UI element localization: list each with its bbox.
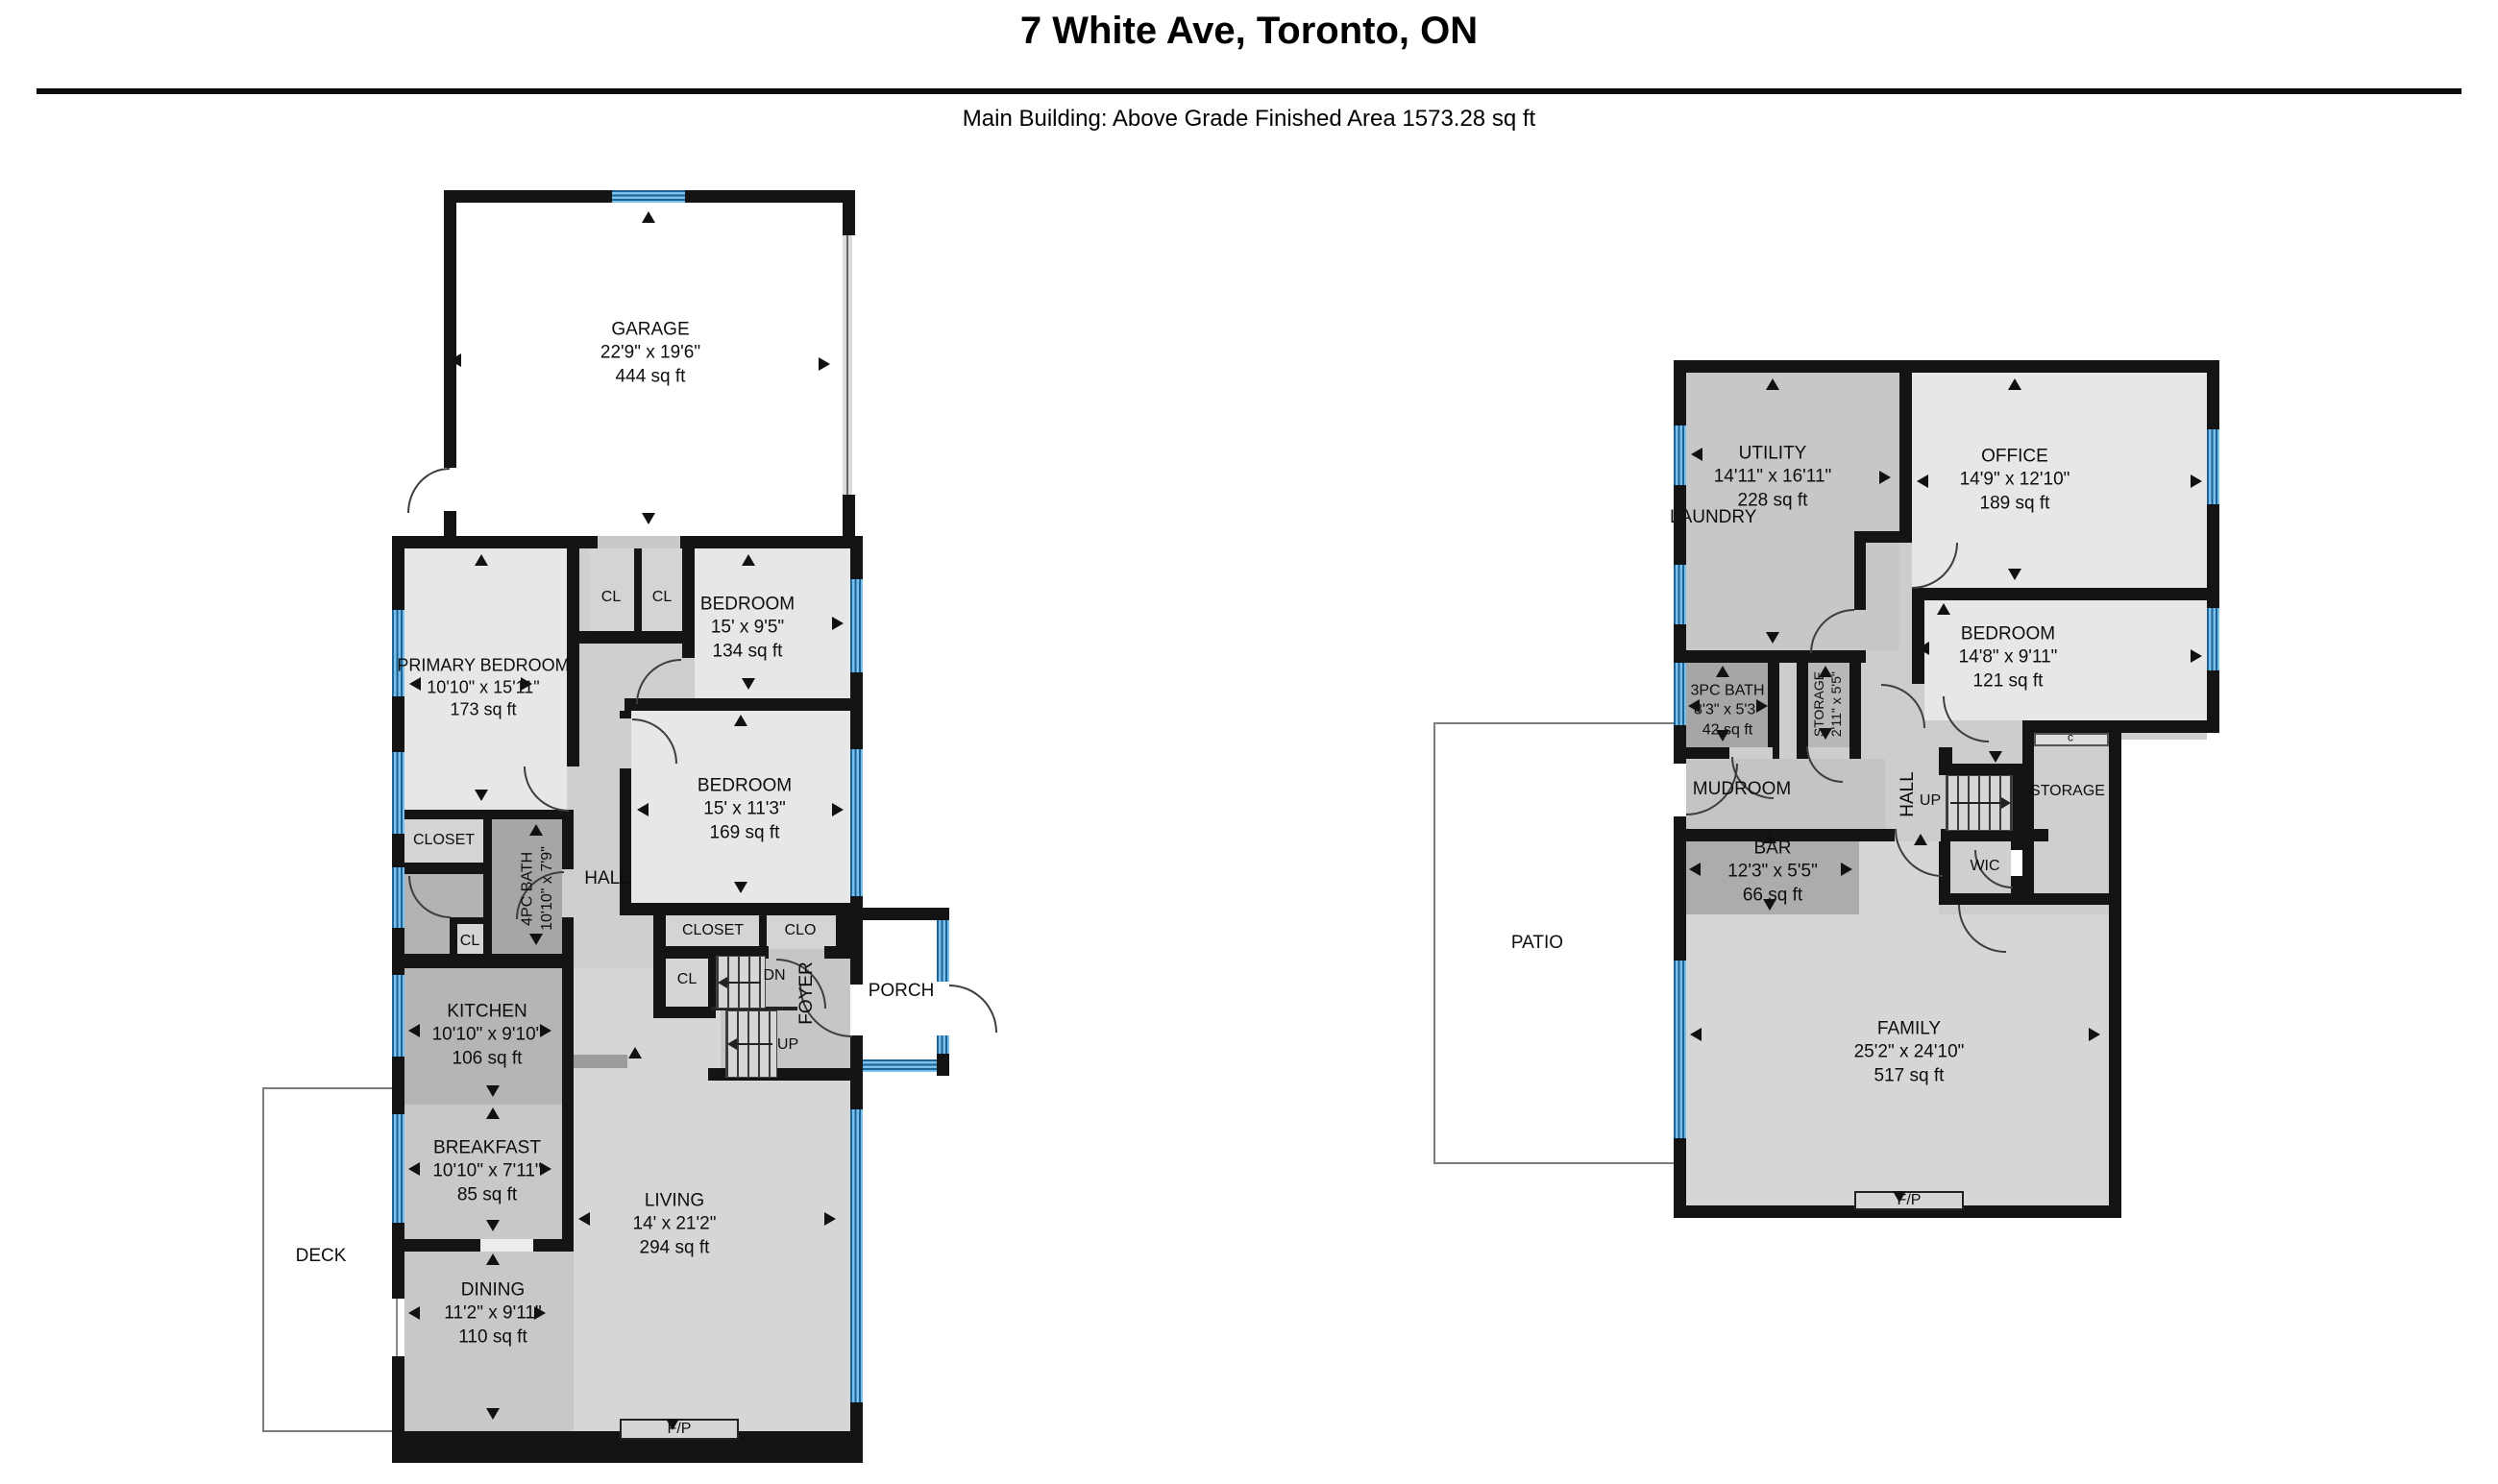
room-label-cl2: CL	[652, 588, 672, 607]
room-area: 169 sq ft	[698, 821, 792, 844]
room-label-mudroom: MUDROOM	[1693, 778, 1791, 801]
dimension-arrow	[521, 677, 532, 691]
dimension-arrow	[1937, 603, 1950, 615]
stairs-dn-text: DN	[763, 966, 785, 985]
dimension-arrow	[486, 1408, 500, 1420]
room-area: 121 sq ft	[1959, 669, 2058, 693]
dimension-arrow	[832, 803, 844, 816]
dimension-arrow	[1691, 448, 1702, 461]
room-label-bedroom1: BEDROOM15' x 9'5"134 sq ft	[700, 594, 795, 664]
dimension-arrow	[1688, 699, 1700, 713]
dimension-arrow	[486, 1107, 500, 1119]
stair-arrow	[2001, 797, 2011, 809]
room-name: BEDROOM	[1959, 623, 2058, 646]
dimension-arrow	[1766, 632, 1779, 644]
wall	[562, 917, 574, 954]
dimension-arrow	[540, 1024, 551, 1037]
dimension-arrow	[1819, 666, 1832, 677]
stair-arrow-line	[1950, 802, 2008, 804]
room-dims: 14' x 21'2"	[633, 1213, 717, 1236]
wall	[2022, 727, 2034, 905]
window	[1674, 961, 1686, 1138]
dimension-arrow	[734, 715, 747, 726]
wall	[1849, 663, 1861, 759]
dimension-arrow	[1763, 832, 1776, 843]
wall	[1674, 747, 1729, 759]
dimension-arrow	[1989, 751, 2002, 763]
dimension-arrow	[1766, 378, 1779, 390]
door-opening	[937, 982, 949, 1035]
room-name: HALL	[1897, 771, 1920, 817]
window	[850, 579, 863, 672]
room-label-breakfast: BREAKFAST10'10" x 7'11"85 sq ft	[432, 1137, 541, 1207]
room-name: BEDROOM	[698, 775, 792, 798]
window	[1674, 663, 1686, 725]
wall	[653, 1007, 716, 1018]
room-area: 173 sq ft	[397, 699, 569, 721]
dimension-arrow	[408, 1024, 420, 1037]
window	[392, 752, 404, 834]
room-name: CL	[601, 588, 621, 607]
wall	[2109, 733, 2121, 1218]
dimension-arrow	[628, 1047, 642, 1058]
window	[612, 190, 685, 203]
room-label-garage: GARAGE22'9" x 19'6"444 sq ft	[600, 319, 700, 389]
dimension-arrow	[1716, 666, 1729, 677]
wall	[392, 863, 483, 874]
dimension-arrow	[642, 211, 655, 223]
room-name: CL	[652, 588, 672, 607]
wall	[483, 810, 492, 959]
stairs-up	[1946, 775, 2013, 831]
wall	[392, 1239, 480, 1252]
wall	[620, 711, 631, 718]
room-label-storage: STORAGE	[2030, 782, 2105, 801]
dimension-arrow	[742, 678, 755, 690]
room-name: FAMILY	[1854, 1018, 1965, 1041]
room-name: 4PC BATH	[519, 846, 538, 931]
wall	[2022, 720, 2219, 733]
window	[2207, 608, 2219, 670]
room-name: CL	[460, 932, 479, 951]
room-dims: 14'11" x 16'11"	[1714, 466, 1832, 489]
dimension-arrow	[2089, 1028, 2100, 1041]
room-label-cl3: CL	[460, 932, 479, 951]
room-label-family: FAMILY25'2" x 24'10"517 sq ft	[1854, 1018, 1965, 1088]
dimension-arrow	[824, 1212, 836, 1226]
room-label-wic: WIC	[1970, 857, 1999, 876]
wall	[759, 915, 767, 949]
room-dims: 22'9" x 19'6"	[600, 342, 700, 365]
room-label-bath4pc: 4PC BATH10'10" x 7'9"	[519, 846, 558, 931]
wall	[836, 903, 850, 959]
room-area: 106 sq ft	[432, 1047, 543, 1070]
dimension-arrow	[486, 1220, 500, 1231]
dimension-arrow	[486, 1085, 500, 1097]
stairs-label-up: UP	[777, 1035, 798, 1055]
room-label-clo: CLO	[785, 921, 817, 940]
room-label-foyer: FOYER	[796, 961, 819, 1024]
dimension-arrow	[2008, 569, 2021, 580]
room-name: STORAGE	[1811, 671, 1828, 737]
wall	[562, 810, 574, 869]
dimension-arrow	[1918, 642, 1929, 655]
stairs-down	[716, 956, 766, 1009]
room-name: PORCH	[869, 980, 935, 1003]
dimension-arrow	[642, 513, 655, 524]
room-label-utility: UTILITY14'11" x 16'11"228 sq ft	[1714, 443, 1832, 513]
wall	[579, 631, 695, 644]
wall	[1674, 360, 2219, 373]
wall	[1854, 531, 1912, 543]
room-area: 189 sq ft	[1960, 492, 2070, 515]
room-name: BEDROOM	[700, 594, 795, 617]
dimension-arrow	[475, 790, 488, 801]
stairs-up-text: UP	[777, 1035, 798, 1055]
room-name: GARAGE	[600, 319, 700, 342]
room-area: 134 sq ft	[700, 640, 795, 663]
room-name: CL	[677, 970, 697, 989]
room-label-cl1: CL	[601, 588, 621, 607]
wall	[708, 959, 716, 1007]
dimension-arrow	[1879, 471, 1891, 484]
room-name: PATIO	[1511, 932, 1563, 955]
room-name: KITCHEN	[432, 1001, 543, 1024]
window	[850, 1109, 863, 1402]
dimension-arrow	[1893, 1191, 1906, 1203]
room-label-living: LIVING14' x 21'2"294 sq ft	[633, 1190, 717, 1260]
room-dims: 10'10" x 15'11"	[397, 676, 569, 698]
dimension-arrow	[540, 1162, 551, 1176]
wall	[533, 1239, 574, 1252]
room-dims: 10'10" x 9'10"	[432, 1024, 543, 1047]
dimension-arrow	[666, 1419, 679, 1430]
stairs-up-text: UP	[1920, 791, 1941, 811]
room-area: 444 sq ft	[600, 365, 700, 388]
door-opening	[1674, 764, 1686, 816]
dimension-arrow	[1689, 863, 1701, 876]
room-label-patio: PATIO	[1511, 932, 1563, 955]
room-dims: 15' x 11'3"	[698, 798, 792, 821]
window	[850, 749, 863, 896]
page-title: 7 White Ave, Toronto, ON	[0, 10, 2498, 53]
door-swing	[407, 468, 450, 513]
room-label-cl4: CL	[677, 970, 697, 989]
room-name: WIC	[1970, 857, 1999, 876]
room-label-bedroom3: BEDROOM14'8" x 9'11"121 sq ft	[1959, 623, 2058, 693]
room-area: 228 sq ft	[1714, 489, 1832, 512]
window	[392, 867, 404, 928]
room-name: LIVING	[633, 1190, 717, 1213]
sliding-door	[392, 1299, 404, 1356]
room-label-bedroom2: BEDROOM15' x 11'3"169 sq ft	[698, 775, 792, 845]
room-label-kitchen: KITCHEN10'10" x 9'10"106 sq ft	[432, 1001, 543, 1071]
wall	[843, 495, 855, 536]
window	[937, 920, 949, 982]
wall	[850, 1057, 863, 1076]
wall	[1899, 373, 1912, 543]
room-name: MUDROOM	[1693, 778, 1791, 801]
dimension-arrow	[734, 882, 747, 893]
dimension-arrow	[1819, 728, 1832, 740]
room-name: OFFICE	[1960, 446, 2070, 469]
room-area: 110 sq ft	[444, 1326, 541, 1349]
room-dims: 8'3" x 5'3"	[1690, 701, 1764, 720]
room-label-closet: CLOSET	[413, 831, 475, 850]
dimension-arrow	[742, 554, 755, 566]
dimension-arrow	[529, 934, 543, 945]
window	[392, 975, 404, 1057]
dimension-arrow	[534, 1306, 546, 1320]
dimension-arrow	[832, 617, 844, 630]
room-label-storage-small: STORAGE2'11" x 5'5"	[1811, 671, 1846, 737]
room-name: PRIMARY BEDROOM	[397, 654, 569, 676]
wall	[1797, 663, 1808, 759]
room-dims: 10'10" x 7'11"	[432, 1160, 541, 1183]
dimension-arrow	[819, 357, 830, 371]
room-area: 517 sq ft	[1854, 1064, 1965, 1087]
wall	[843, 203, 855, 235]
door-opening	[480, 1239, 533, 1252]
room-name: DINING	[444, 1279, 541, 1302]
room-dims: 11'2" x 9'11"	[444, 1302, 541, 1326]
room-dims: 14'9" x 12'10"	[1960, 469, 2070, 492]
room-name: DECK	[296, 1245, 347, 1268]
room-label-hall2: HALL	[1897, 771, 1920, 817]
dimension-arrow	[1917, 474, 1928, 488]
window	[2207, 429, 2219, 504]
sliding-door-line	[396, 1299, 398, 1356]
room-area: 294 sq ft	[633, 1236, 717, 1259]
dimension-arrow	[578, 1212, 590, 1226]
window	[937, 1035, 949, 1054]
floorplan-page: 7 White Ave, Toronto, ON Main Building: …	[0, 0, 2498, 1484]
room-dims: 2'11" x 5'5"	[1828, 671, 1846, 737]
wall	[562, 954, 574, 1239]
room-fill-storage	[2034, 744, 2109, 893]
dimension-arrow	[408, 1306, 420, 1320]
room-label-hall: HALL	[584, 867, 630, 890]
room-name: CLOSET	[413, 831, 475, 850]
wall	[1939, 893, 2109, 905]
garage-door-line	[846, 235, 848, 495]
room-dims: 15' x 9'5"	[700, 617, 795, 640]
wall	[392, 954, 574, 968]
wall	[2207, 373, 2219, 733]
dimension-arrow	[2191, 649, 2202, 663]
room-name: CLOSET	[682, 921, 744, 940]
room-label-dining: DINING11'2" x 9'11"110 sq ft	[444, 1279, 541, 1350]
wall	[620, 903, 850, 915]
dimension-arrow	[1914, 834, 1927, 845]
dimension-arrow	[2008, 378, 2021, 390]
room-name: STORAGE	[2030, 782, 2105, 801]
room-label-primary-bedroom: PRIMARY BEDROOM10'10" x 15'11"173 sq ft	[397, 654, 569, 720]
room-dims: 14'8" x 9'11"	[1959, 646, 2058, 669]
window	[392, 1114, 404, 1223]
wall	[937, 1057, 949, 1076]
wall	[450, 917, 483, 924]
dimension-arrow	[1690, 1028, 1702, 1041]
room-label-deck: DECK	[296, 1245, 347, 1268]
room-label-closet-c: c	[2068, 730, 2073, 744]
fireplace: F/P	[620, 1419, 739, 1440]
page-subtitle: Main Building: Above Grade Finished Area…	[0, 106, 2498, 133]
room-dims: 12'3" x 5'5"	[1727, 861, 1818, 884]
room-name: 3PC BATH	[1690, 681, 1764, 700]
wall	[1773, 747, 1779, 759]
room-label-porch: PORCH	[869, 980, 935, 1003]
dimension-arrow	[1716, 730, 1729, 742]
fireplace: F/P	[1854, 1191, 1964, 1210]
kitchen-counter	[574, 1055, 627, 1068]
dimension-arrow	[529, 824, 543, 836]
stairs-label-up2: UP	[1920, 791, 1941, 811]
room-name: BREAKFAST	[432, 1137, 541, 1160]
room-label-office: OFFICE14'9" x 12'10"189 sq ft	[1960, 446, 2070, 516]
wall	[1939, 747, 1952, 764]
stair-arrow	[718, 977, 727, 988]
window	[1674, 426, 1686, 485]
dimension-arrow	[2191, 474, 2202, 488]
stairs-up	[725, 1010, 777, 1078]
dimension-arrow	[1756, 699, 1768, 713]
window	[1674, 565, 1686, 624]
door-opening	[598, 536, 680, 548]
room-name: FOYER	[796, 961, 819, 1024]
room-name: c	[2068, 730, 2073, 744]
window	[863, 1059, 937, 1072]
room-area: 85 sq ft	[432, 1183, 541, 1206]
room-name: HALL	[584, 867, 630, 890]
door-swing	[949, 985, 997, 1033]
wall	[653, 915, 666, 1018]
dimension-arrow	[475, 554, 488, 566]
dimension-arrow	[450, 353, 461, 367]
stairs-label-dn: DN	[763, 966, 785, 985]
wall	[634, 548, 642, 631]
wall	[1854, 543, 1866, 610]
wall	[1912, 588, 2219, 600]
header-divider	[37, 88, 2461, 94]
room-name: CLO	[785, 921, 817, 940]
dimension-arrow	[1841, 863, 1852, 876]
room-label-bar: BAR12'3" x 5'5"66 sq ft	[1727, 838, 1818, 908]
wall	[850, 908, 949, 920]
room-dims: 10'10" x 7'9"	[538, 846, 557, 931]
room-label-closet2: CLOSET	[682, 921, 744, 940]
room-name: UTILITY	[1714, 443, 1832, 466]
dimension-arrow	[486, 1253, 500, 1265]
room-dims: 25'2" x 24'10"	[1854, 1041, 1965, 1064]
dimension-arrow	[1763, 899, 1776, 911]
dimension-arrow	[409, 677, 421, 691]
wall	[1768, 663, 1779, 747]
dimension-arrow	[637, 803, 649, 816]
stair-arrow	[727, 1038, 737, 1050]
dimension-arrow	[408, 1162, 420, 1176]
